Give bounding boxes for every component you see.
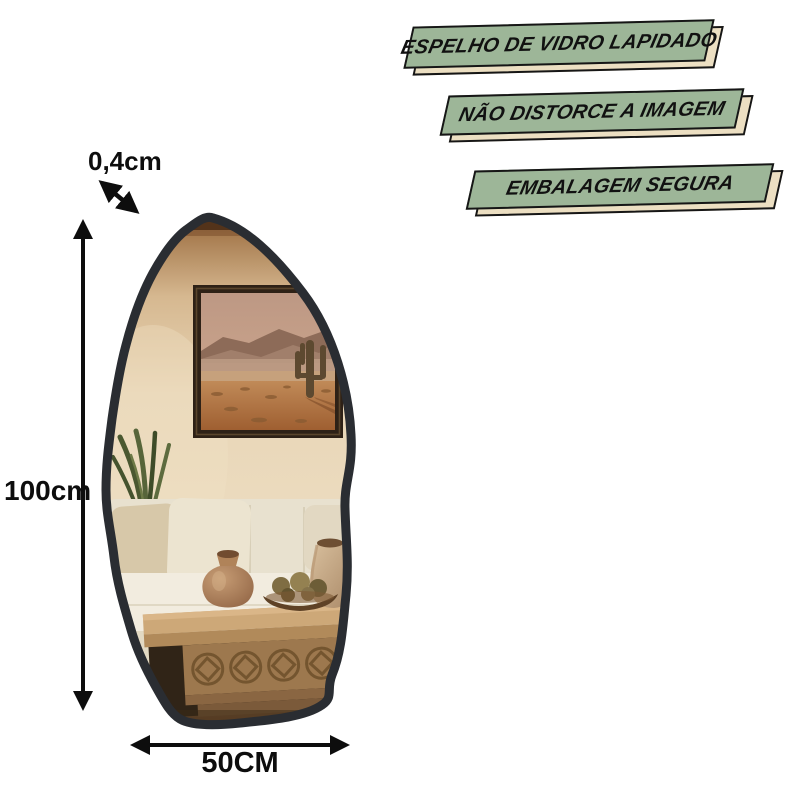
- product-infographic: ESPELHO DE VIDRO LAPIDADO NÃO DISTORCE A…: [0, 0, 800, 800]
- banner-label: NÃO DISTORCE A IMAGEM: [457, 97, 728, 127]
- mirror-product-image: [98, 205, 383, 745]
- banner-face: ESPELHO DE VIDRO LAPIDADO: [403, 19, 714, 69]
- banner-label: ESPELHO DE VIDRO LAPIDADO: [399, 29, 719, 60]
- width-label: 50CM: [122, 747, 358, 780]
- height-arrow-icon: [69, 211, 97, 719]
- feature-banner-2: NÃO DISTORCE A IMAGEM: [444, 88, 741, 135]
- thickness-arrow-icon: [92, 174, 148, 222]
- thickness-label: 0,4cm: [88, 146, 162, 177]
- banner-face: EMBALAGEM SEGURA: [466, 163, 775, 210]
- feature-banner-1: ESPELHO DE VIDRO LAPIDADO: [408, 19, 711, 68]
- feature-banner-3: EMBALAGEM SEGURA: [470, 163, 771, 209]
- desert-painting: [193, 285, 343, 438]
- banner-face: NÃO DISTORCE A IMAGEM: [440, 88, 745, 135]
- banner-label: EMBALAGEM SEGURA: [504, 172, 736, 201]
